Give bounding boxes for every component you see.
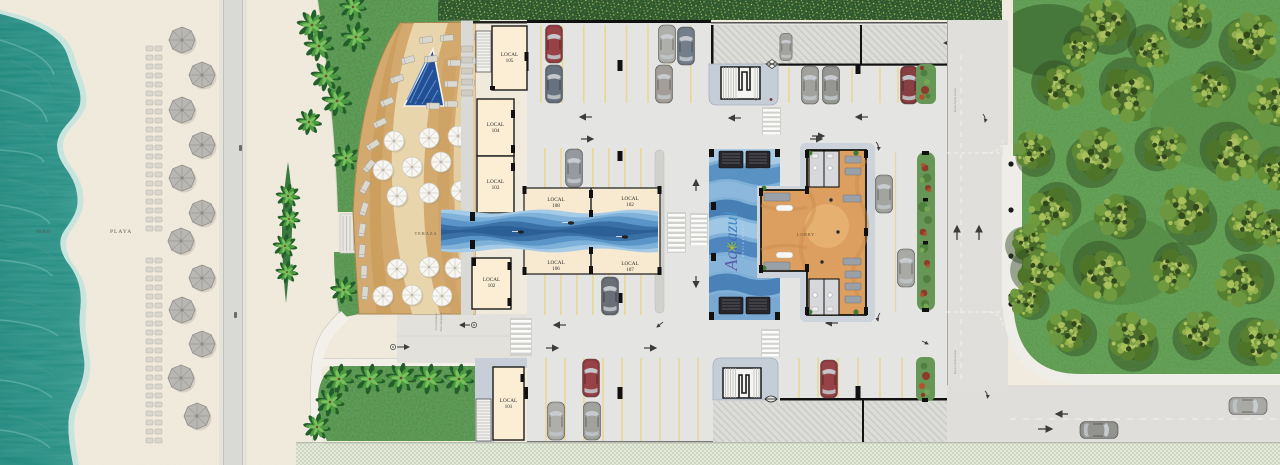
svg-text:Acceso Peatonal: Acceso Peatonal bbox=[435, 313, 438, 330]
svg-text:106: 106 bbox=[552, 266, 560, 272]
svg-text:108: 108 bbox=[552, 203, 560, 209]
svg-text:101: 101 bbox=[505, 404, 513, 410]
svg-text:104: 104 bbox=[492, 128, 500, 134]
svg-text:TERAZA: TERAZA bbox=[415, 231, 438, 236]
svg-text:102: 102 bbox=[488, 283, 496, 289]
svg-text:Aquazul: Aquazul bbox=[721, 211, 741, 271]
svg-text:105: 105 bbox=[506, 58, 514, 64]
svg-text:PLAYA: PLAYA bbox=[110, 229, 132, 235]
svg-text:107: 107 bbox=[626, 267, 634, 273]
svg-text:PISCINA: PISCINA bbox=[416, 99, 433, 103]
svg-text:103: 103 bbox=[492, 185, 500, 191]
svg-text:Nueva Via de Acceso: Nueva Via de Acceso bbox=[954, 87, 957, 112]
svg-text:Nueva Via de Acceso: Nueva Via de Acceso bbox=[954, 349, 957, 374]
svg-text:Plaza Adoquinada: Plaza Adoquinada bbox=[440, 312, 443, 332]
svg-text:102: 102 bbox=[626, 202, 634, 208]
svg-text:RESIDENCES: RESIDENCES bbox=[741, 223, 745, 257]
svg-text:LOBBY: LOBBY bbox=[797, 232, 815, 237]
svg-text:MAR: MAR bbox=[36, 229, 52, 235]
